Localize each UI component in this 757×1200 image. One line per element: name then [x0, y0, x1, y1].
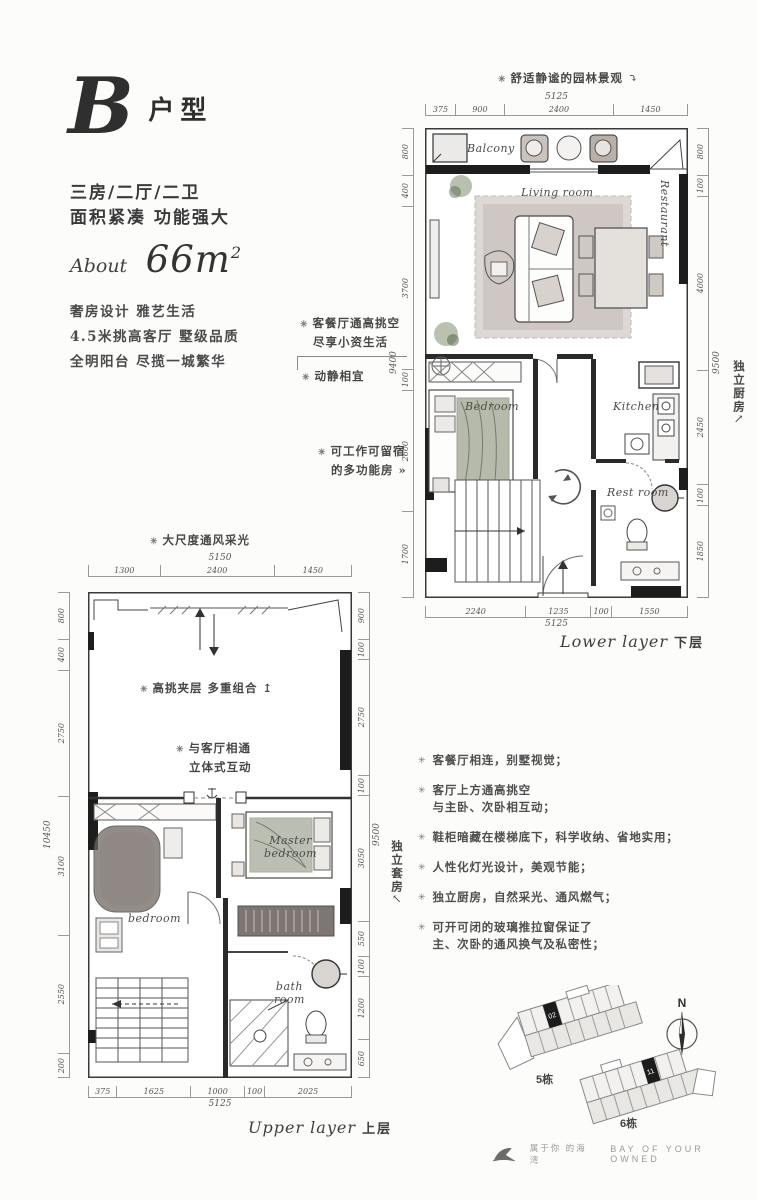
dimension-segment: 3700 [402, 206, 413, 369]
lower-layer-caption: Lower layer 下层 [560, 632, 704, 651]
footer-en-tagline: BAY OF YOUR OWNED [610, 1144, 757, 1164]
dimension-segment: 2450 [697, 370, 708, 485]
feature-text: 客餐厅相连，别墅视觉； [433, 752, 568, 769]
dimension-segment: 400 [402, 175, 413, 207]
dimension-value: 375 [95, 1088, 110, 1097]
floorplan-sheet: B 户型 三房/二厅/二卫 面积紧凑 功能强大 About 66m2 奢房设计 … [0, 0, 757, 1200]
lower-dim-top-total: 5125 [425, 92, 688, 102]
lower-dim-left: 800400370010026001700 [402, 128, 414, 598]
feature-list: ✳客餐厅相连，别墅视觉；✳客厅上方通高挑空与主卧、次卧相互动；✳鞋柜暗藏在楼梯底… [418, 752, 748, 966]
feature-item: ✳客厅上方通高挑空与主卧、次卧相互动； [418, 782, 748, 816]
dimension-value: 100 [247, 1088, 262, 1097]
dimension-segment: 4000 [697, 196, 708, 370]
dimension-segment: 3050 [358, 795, 369, 921]
area-value: 66m [146, 238, 231, 281]
desc-lines: 奢房设计 雅艺生活 4.5米挑高客厅 墅级品质 全明阳台 尽揽一城繁华 [70, 300, 239, 375]
dimension-segment: 1700 [402, 511, 413, 598]
desc-1: 奢房设计 雅艺生活 [70, 300, 239, 325]
dimension-segment: 100 [402, 369, 413, 390]
dimension-segment: 100 [358, 775, 369, 795]
lower-note-kitchen: 独立厨房↖ [730, 360, 747, 470]
room-label-bath: bathroom [274, 980, 305, 1006]
dimension-value: 200 [58, 1058, 67, 1073]
bullet-icon: ✳ [418, 829, 426, 846]
room-label-master: Masterbedroom [264, 834, 317, 860]
dimension-value: 1235 [548, 608, 568, 617]
upper-dim-left: 800400275031002550200 [58, 592, 70, 1078]
footer-logo: 属于你 的海湾 BAY OF YOUR OWNED [492, 1142, 757, 1166]
footer-cn-tagline: 属于你 的海湾 [530, 1142, 597, 1166]
lower-dim-right-total: 9500 [712, 128, 722, 598]
upper-dim-bottom-total: 5125 [88, 1099, 352, 1109]
dimension-segment: 800 [697, 128, 708, 175]
room-label-kitchen: Kitchen [613, 400, 660, 413]
area-line: About 66m2 [70, 238, 241, 281]
dimension-segment: 1850 [697, 505, 708, 598]
dimension-value: 100 [358, 959, 367, 974]
dimension-value: 900 [472, 106, 487, 115]
room-label-restroom: Rest room [607, 486, 669, 499]
dimension-segment: 1200 [358, 976, 369, 1038]
dimension-value: 2400 [207, 567, 227, 576]
dimension-value: 2750 [358, 707, 367, 727]
dimension-value: 800 [58, 608, 67, 623]
about-label: About [70, 255, 127, 277]
dimension-segment: 2550 [58, 935, 69, 1053]
upper-dim-left-total: 10450 [43, 592, 53, 1078]
dimension-value: 2025 [298, 1088, 318, 1097]
dimension-value: 1550 [639, 608, 659, 617]
dimension-segment: 100 [358, 639, 369, 659]
sail-logo-icon [492, 1145, 516, 1163]
upper-note-interact: ✳与客厅相通 立体式互动 [176, 740, 252, 776]
lower-dim-bottom-total: 5125 [425, 619, 688, 629]
upper-dim-bottom: 375162510001002025 [88, 1086, 352, 1098]
lower-note-zones: ✳动静相宜 [302, 368, 365, 387]
dimension-value: 2750 [58, 723, 67, 743]
feature-text: 客厅上方通高挑空与主卧、次卧相互动； [433, 782, 556, 816]
dimension-value: 2450 [697, 417, 706, 437]
feature-text: 鞋柜暗藏在楼梯底下，科学收纳、省地实用； [433, 829, 679, 846]
dimension-value: 800 [402, 144, 411, 159]
dimension-value: 4000 [697, 273, 706, 293]
bullet-icon: ✳ [418, 782, 426, 816]
north-compass: N [662, 996, 702, 1060]
dimension-value: 400 [402, 183, 411, 198]
unit-tagline: 面积紧凑 功能强大 [70, 203, 230, 228]
upper-dim-top-total: 5150 [88, 553, 352, 563]
bullet-icon: ✳ [418, 889, 426, 906]
dimension-segment: 100 [697, 484, 708, 505]
dimension-value: 1450 [303, 567, 323, 576]
room-label-living: Living room [521, 186, 594, 199]
dimension-value: 1625 [144, 1088, 164, 1097]
dimension-value: 1200 [358, 998, 367, 1018]
dimension-segment: 100 [358, 956, 369, 976]
upper-note-light: ✳大尺度通风采光 [150, 532, 250, 551]
dot-icon: ✳ [176, 745, 185, 755]
lower-note-multiroom: ✳可工作可留宿 的多功能房 » [318, 443, 407, 479]
dimension-value: 3700 [402, 278, 411, 298]
dimension-value: 100 [358, 642, 367, 657]
dot-icon: ✳ [302, 373, 311, 383]
dimension-segment: 100 [244, 1086, 264, 1097]
dimension-value: 2240 [466, 608, 486, 617]
dimension-value: 1450 [640, 106, 660, 115]
dimension-segment: 2400 [160, 565, 274, 576]
dimension-segment: 1450 [274, 565, 352, 576]
upper-dim-right: 900100275010030505501001200650 [358, 592, 370, 1078]
dot-icon: ✳ [140, 685, 149, 695]
north-label: N [662, 996, 702, 1010]
room-label-balcony: Balcony [467, 142, 515, 155]
upper-note-suite: 独立套房↙ [388, 840, 405, 940]
dimension-value: 1700 [402, 544, 411, 564]
dimension-segment: 100 [697, 175, 708, 196]
dimension-segment: 2400 [504, 104, 613, 115]
room-label-restaurant: Restaurant [658, 180, 671, 247]
dimension-value: 650 [358, 1051, 367, 1066]
connector-line [297, 356, 407, 357]
dimension-segment: 2240 [425, 606, 525, 617]
dot-icon: ✳ [300, 320, 309, 330]
dimension-segment: 100 [590, 606, 611, 617]
dimension-segment: 375 [425, 104, 455, 115]
room-label-bedroom: Bedroom [465, 400, 519, 413]
upper-dim-top: 130024001450 [88, 565, 352, 577]
feature-text: 人性化灯光设计，美观节能； [433, 859, 593, 876]
dimension-value: 900 [358, 608, 367, 623]
bullet-icon: ✳ [418, 919, 426, 953]
lower-dim-right: 800100400024501001850 [697, 128, 709, 598]
lower-note-garden: ✳舒适静谧的园林景观 ⤵ [498, 70, 639, 89]
unit-config: 三房/二厅/二卫 [70, 178, 200, 203]
dimension-segment: 900 [358, 592, 369, 639]
dimension-value: 100 [697, 178, 706, 193]
bullet-icon: ✳ [418, 859, 426, 876]
lower-dim-bottom: 224012351001550 [425, 606, 688, 618]
feature-text: 可开可闭的玻璃推拉窗保证了主、次卧的通风换气及私密性； [433, 919, 605, 953]
dimension-segment: 2750 [58, 670, 69, 796]
area-sup: 2 [231, 243, 241, 262]
building6-label: 6栋 [620, 1115, 637, 1131]
dimension-segment: 1625 [116, 1086, 190, 1097]
asterisk-icon: ✳ [150, 537, 159, 547]
page-title: B 户型 [68, 68, 202, 146]
dimension-value: 100 [594, 608, 609, 617]
dimension-value: 2550 [58, 984, 67, 1004]
upper-dim-right-total: 9500 [372, 592, 382, 1078]
dimension-value: 1850 [697, 541, 706, 561]
dimension-segment: 400 [58, 639, 69, 670]
room-label-bedroom2: bedroom [128, 912, 181, 925]
dimension-segment: 550 [358, 921, 369, 956]
lower-plan: Balcony Living room Restaurant Bedroom K… [425, 128, 688, 598]
unit-suffix: 户型 [148, 96, 212, 126]
dimension-value: 1000 [207, 1088, 227, 1097]
dimension-segment: 3100 [58, 796, 69, 935]
connector-line [297, 356, 298, 370]
feature-item: ✳独立厨房，自然采光、通风燃气； [418, 889, 748, 906]
dimension-value: 400 [58, 647, 67, 662]
dimension-value: 100 [402, 372, 411, 387]
unit-letter: B [68, 61, 134, 152]
compass-icon [662, 1010, 702, 1058]
dimension-segment: 1235 [525, 606, 590, 617]
desc-2: 4.5米挑高客厅 墅级品质 [70, 325, 239, 350]
dimension-value: 100 [697, 488, 706, 503]
feature-item: ✳人性化灯光设计，美观节能； [418, 859, 748, 876]
dimension-value: 1300 [114, 567, 134, 576]
dimension-value: 100 [358, 778, 367, 793]
dot-icon: ✳ [318, 448, 327, 458]
lower-note-loft: ✳客餐厅通高挑空 尽享小资生活 [300, 315, 400, 351]
dimension-segment: 800 [58, 592, 69, 639]
arrow-icon: ↖ [732, 414, 746, 426]
feature-item: ✳鞋柜暗藏在楼梯底下，科学收纳、省地实用； [418, 829, 748, 846]
dimension-segment: 1450 [613, 104, 688, 115]
dimension-segment: 1000 [190, 1086, 244, 1097]
arrow-icon: ↙ [390, 894, 404, 906]
dimension-segment: 900 [455, 104, 504, 115]
dimension-value: 375 [433, 106, 448, 115]
dimension-value: 2400 [549, 106, 569, 115]
feature-item: ✳客餐厅相连，别墅视觉； [418, 752, 748, 769]
dimension-segment: 650 [358, 1039, 369, 1078]
upper-note-loft: ✳高挑夹层 多重组合 ↥ [140, 680, 273, 699]
building5-label: 5栋 [536, 1071, 553, 1087]
upper-plan: ✳高挑夹层 多重组合 ↥ ✳与客厅相通 立体式互动 bedroom Master… [88, 592, 352, 1078]
bullet-icon: ✳ [418, 752, 426, 769]
feature-text: 独立厨房，自然采光、通风燃气； [433, 889, 618, 906]
dimension-segment: 2025 [264, 1086, 352, 1097]
asterisk-icon: ✳ [498, 75, 507, 85]
dimension-segment: 1550 [611, 606, 688, 617]
desc-3: 全明阳台 尽揽一城繁华 [70, 350, 239, 375]
dimension-segment: 2750 [358, 659, 369, 774]
dimension-value: 3050 [358, 848, 367, 868]
feature-item: ✳可开可闭的玻璃推拉窗保证了主、次卧的通风换气及私密性； [418, 919, 748, 953]
lower-dim-left-total: 9400 [389, 128, 399, 598]
upper-layer-caption: Upper layer 上层 [248, 1118, 392, 1137]
dimension-segment: 200 [58, 1053, 69, 1078]
dimension-value: 3100 [58, 856, 67, 876]
lower-dim-top: 37590024001450 [425, 104, 688, 116]
curve-arrow-icon: ⤵ [628, 71, 639, 85]
dimension-segment: 1300 [88, 565, 160, 576]
dimension-value: 800 [697, 144, 706, 159]
dimension-value: 550 [358, 931, 367, 946]
dimension-segment: 800 [402, 128, 413, 175]
dimension-segment: 375 [88, 1086, 116, 1097]
